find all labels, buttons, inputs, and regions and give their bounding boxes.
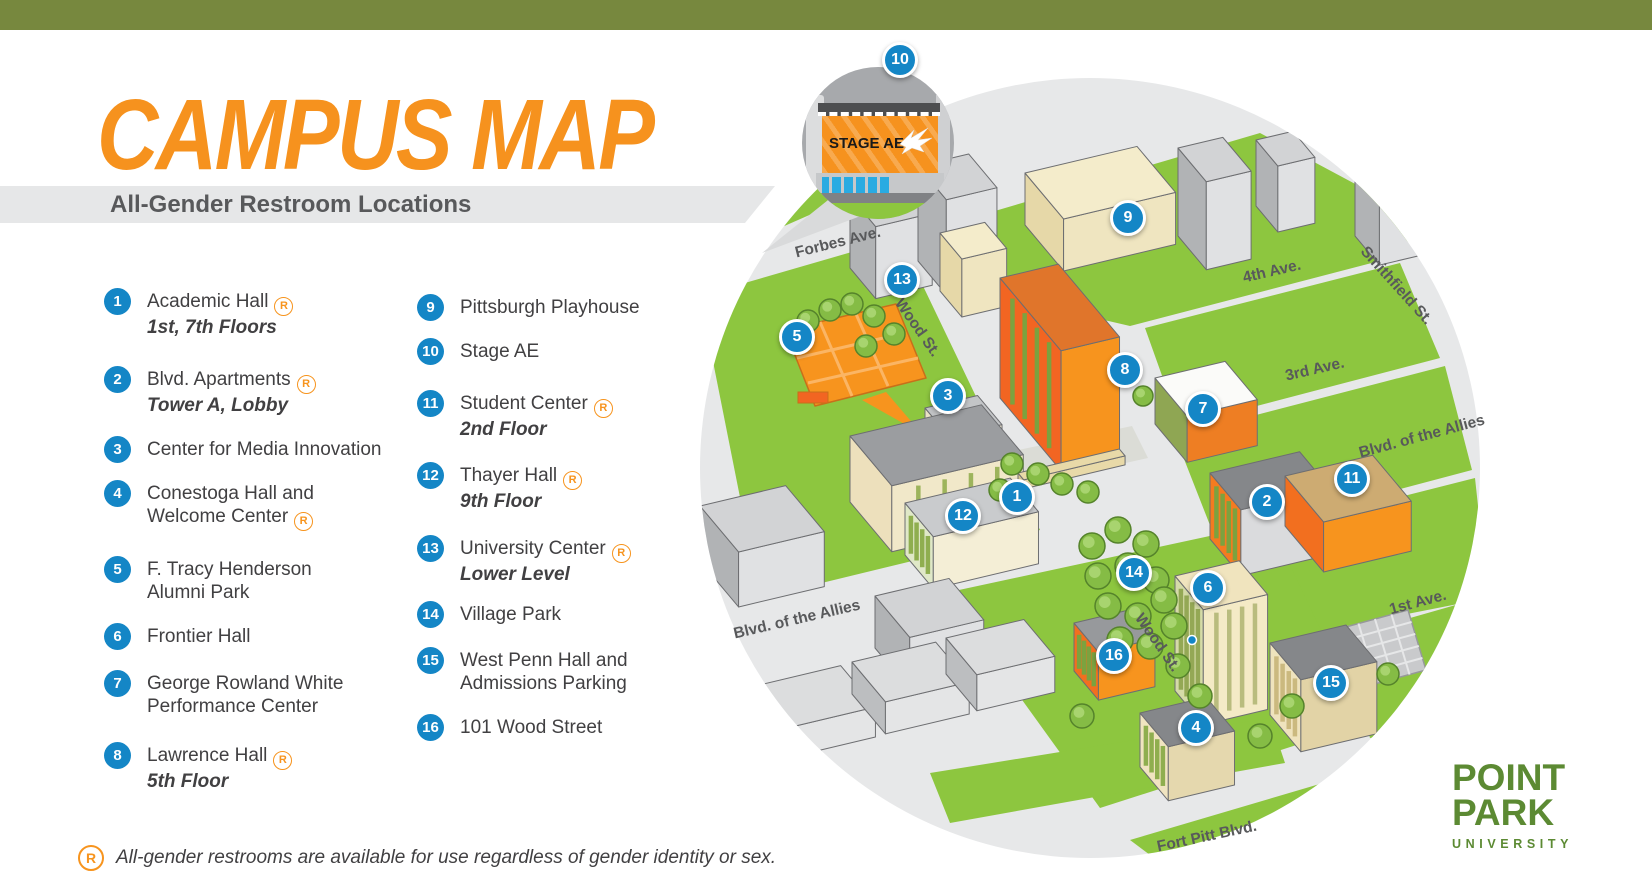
map-marker-4: 4 bbox=[1178, 710, 1214, 746]
legend-item-9: 9Pittsburgh Playhouse bbox=[417, 294, 640, 321]
map-marker-16: 16 bbox=[1096, 638, 1132, 674]
legend-number-badge: 16 bbox=[417, 714, 444, 741]
legend-item-5: 5F. Tracy Henderson Alumni Park bbox=[104, 556, 312, 604]
legend-number-badge: 6 bbox=[104, 623, 131, 650]
legend-item-13: 13University CenterRLower Level bbox=[417, 535, 631, 586]
legend-item-label: 101 Wood Street bbox=[460, 714, 602, 739]
legend-number-badge: 4 bbox=[104, 480, 131, 507]
map-marker-5: 5 bbox=[779, 319, 815, 355]
legend-item-sublabel: 5th Floor bbox=[147, 770, 292, 793]
map-marker-10: 10 bbox=[882, 42, 918, 78]
legend-item-label: Frontier Hall bbox=[147, 623, 250, 648]
page-title: CAMPUS MAP bbox=[97, 78, 652, 193]
legend-number-badge: 2 bbox=[104, 366, 131, 393]
restroom-symbol-icon: R bbox=[294, 512, 313, 531]
legend-item-label: West Penn Hall and Admissions Parking bbox=[460, 647, 628, 695]
legend-item-2: 2Blvd. ApartmentsRTower A, Lobby bbox=[104, 366, 316, 417]
map-marker-2: 2 bbox=[1249, 484, 1285, 520]
restroom-symbol-icon: R bbox=[612, 544, 631, 563]
restroom-symbol-icon: R bbox=[297, 375, 316, 394]
logo-line-university: UNIVERSITY bbox=[1452, 837, 1573, 851]
stage-ae-inset: STAGE AE bbox=[802, 67, 954, 219]
map-marker-3: 3 bbox=[930, 378, 966, 414]
legend-item-label: Blvd. ApartmentsR bbox=[147, 366, 316, 394]
restroom-symbol-icon: R bbox=[273, 751, 292, 770]
legend-item-label: Stage AE bbox=[460, 338, 539, 363]
legend-item-4: 4Conestoga Hall and Welcome CenterR bbox=[104, 480, 314, 531]
logo-line-point: POINT bbox=[1452, 760, 1573, 795]
legend-item-6: 6Frontier Hall bbox=[104, 623, 250, 650]
point-park-logo: POINT PARK UNIVERSITY bbox=[1452, 760, 1573, 851]
footnote-text: All-gender restrooms are available for u… bbox=[116, 847, 776, 869]
legend-item-label: Thayer HallR bbox=[460, 462, 582, 490]
legend-item-sublabel: 2nd Floor bbox=[460, 418, 613, 441]
legend-item-sublabel: Tower A, Lobby bbox=[147, 394, 316, 417]
legend-number-badge: 1 bbox=[104, 288, 131, 315]
legend-item-label: Lawrence HallR bbox=[147, 742, 292, 770]
stage-ae-billboard: STAGE AE bbox=[822, 116, 938, 173]
top-accent-bar bbox=[0, 0, 1652, 30]
subtitle-band: All-Gender Restroom Locations bbox=[0, 186, 775, 223]
map-marker-12: 12 bbox=[945, 498, 981, 534]
legend-number-badge: 8 bbox=[104, 742, 131, 769]
legend-number-badge: 15 bbox=[417, 647, 444, 674]
map-marker-14: 14 bbox=[1116, 555, 1152, 591]
legend-number-badge: 14 bbox=[417, 601, 444, 628]
map-marker-9: 9 bbox=[1110, 200, 1146, 236]
legend-item-sublabel: Lower Level bbox=[460, 563, 631, 586]
legend-item-label: Student CenterR bbox=[460, 390, 613, 418]
legend-item-10: 10Stage AE bbox=[417, 338, 539, 365]
legend-number-badge: 13 bbox=[417, 535, 444, 562]
legend-item-label: F. Tracy Henderson Alumni Park bbox=[147, 556, 312, 604]
legend-number-badge: 3 bbox=[104, 436, 131, 463]
map-marker-7: 7 bbox=[1185, 391, 1221, 427]
stage-ae-label: STAGE AE bbox=[829, 135, 904, 152]
map-marker-11: 11 bbox=[1334, 461, 1370, 497]
logo-line-park: PARK bbox=[1452, 795, 1573, 830]
legend-item-label: Center for Media Innovation bbox=[147, 436, 381, 461]
footnote: R All-gender restrooms are available for… bbox=[78, 845, 776, 871]
map-marker-13: 13 bbox=[884, 262, 920, 298]
legend-item-label: Conestoga Hall and Welcome CenterR bbox=[147, 480, 314, 531]
legend-number-badge: 7 bbox=[104, 670, 131, 697]
restroom-symbol-icon: R bbox=[274, 297, 293, 316]
inset-grass bbox=[802, 203, 954, 219]
subtitle: All-Gender Restroom Locations bbox=[110, 186, 471, 223]
restroom-symbol-icon: R bbox=[78, 845, 104, 871]
legend-item-label: Village Park bbox=[460, 601, 561, 626]
eagle-icon bbox=[894, 122, 936, 158]
legend-number-badge: 12 bbox=[417, 462, 444, 489]
restroom-symbol-icon: R bbox=[563, 471, 582, 490]
legend-item-15: 15West Penn Hall and Admissions Parking bbox=[417, 647, 628, 695]
legend-item-1: 1Academic HallR1st, 7th Floors bbox=[104, 288, 293, 339]
legend-item-label: University CenterR bbox=[460, 535, 631, 563]
map-marker-8: 8 bbox=[1107, 352, 1143, 388]
map-marker-15: 15 bbox=[1313, 665, 1349, 701]
legend-item-label: George Rowland White Performance Center bbox=[147, 670, 343, 718]
legend-item-12: 12Thayer HallR9th Floor bbox=[417, 462, 582, 513]
legend-number-badge: 11 bbox=[417, 390, 444, 417]
legend-item-sublabel: 1st, 7th Floors bbox=[147, 316, 293, 339]
legend-number-badge: 10 bbox=[417, 338, 444, 365]
legend-item-3: 3Center for Media Innovation bbox=[104, 436, 381, 463]
legend-item-16: 16101 Wood Street bbox=[417, 714, 602, 741]
map-marker-1: 1 bbox=[999, 479, 1035, 515]
legend-item-7: 7George Rowland White Performance Center bbox=[104, 670, 343, 718]
map-dot bbox=[1188, 636, 1197, 645]
legend-item-label: Academic HallR bbox=[147, 288, 293, 316]
map-marker-6: 6 bbox=[1190, 570, 1226, 606]
legend-number-badge: 9 bbox=[417, 294, 444, 321]
legend-item-11: 11Student CenterR2nd Floor bbox=[417, 390, 613, 441]
restroom-symbol-icon: R bbox=[594, 399, 613, 418]
legend-number-badge: 5 bbox=[104, 556, 131, 583]
legend-item-8: 8Lawrence HallR5th Floor bbox=[104, 742, 292, 793]
inset-awning bbox=[818, 103, 940, 116]
inset-windows bbox=[820, 175, 894, 195]
legend-item-sublabel: 9th Floor bbox=[460, 490, 582, 513]
legend-item-14: 14Village Park bbox=[417, 601, 561, 628]
legend-item-label: Pittsburgh Playhouse bbox=[460, 294, 640, 319]
